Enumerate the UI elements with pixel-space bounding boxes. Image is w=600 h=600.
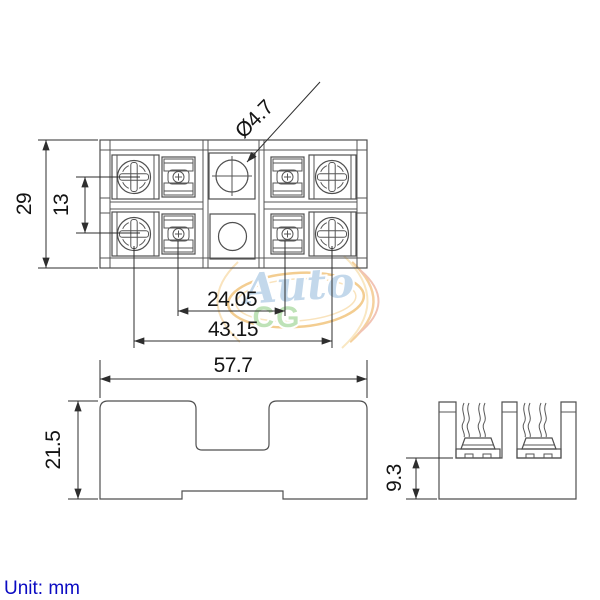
dim-overall-height-label: 29: [13, 193, 36, 215]
terminal-screw-icon: [316, 161, 349, 194]
side-view: 9.3: [383, 402, 576, 499]
dim-pitch-label: 13: [50, 194, 73, 216]
terminal-screw-icon: [316, 218, 349, 251]
watermark-text-secondary: CG: [253, 301, 302, 334]
front-view: 21.5: [42, 401, 367, 499]
dim-base-height-label: 9.3: [383, 464, 406, 492]
drawing-canvas: Auto CG: [0, 0, 600, 600]
dim-overall-width-label: 57.7: [214, 354, 253, 377]
top-view: [100, 140, 367, 268]
fuse-clip-icon: [162, 157, 195, 197]
dim-screw-span-label: 43.15: [208, 318, 258, 341]
dim-inner-span-label: 24.05: [207, 288, 257, 311]
mounting-hole-top: [209, 153, 255, 199]
fuse-clip-icon: [271, 157, 304, 197]
terminal-screw-icon: [118, 218, 151, 251]
technical-drawing: Auto CG: [0, 0, 600, 600]
mounting-hole-bottom: [210, 214, 255, 259]
dim-front-height-label: 21.5: [42, 431, 65, 470]
fuse-clip-side-icon: [456, 403, 500, 458]
unit-label: Unit: mm: [4, 578, 80, 599]
fuse-clip-side-icon: [517, 403, 561, 458]
fuse-clip-icon: [271, 214, 304, 254]
